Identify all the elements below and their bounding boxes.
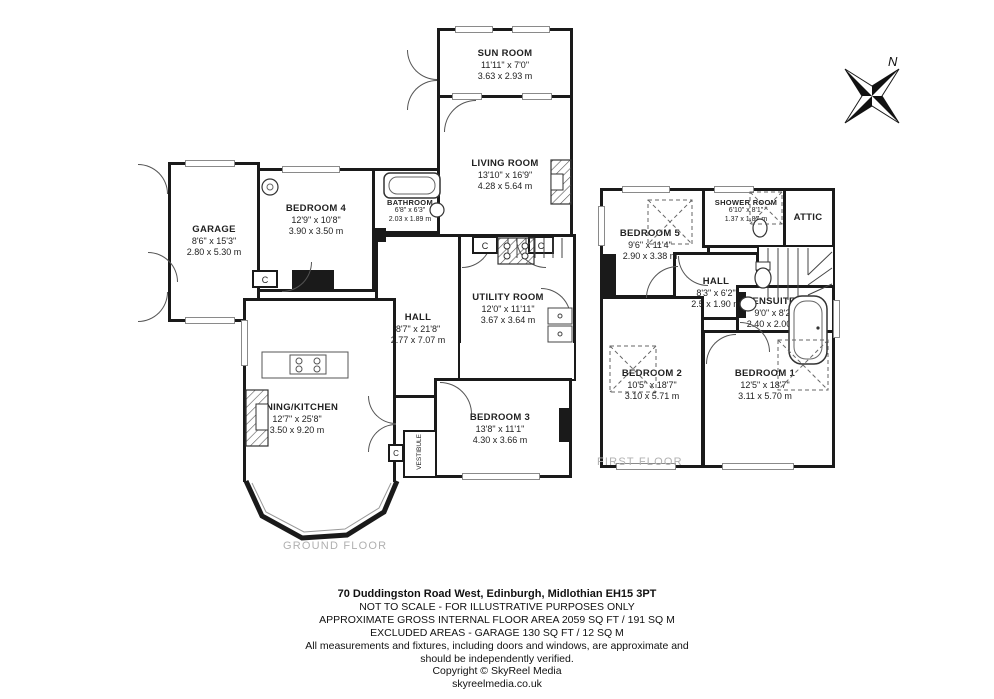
- wall-chunk: [559, 408, 572, 442]
- cupboard-label: C: [252, 270, 278, 288]
- copyright-line: Copyright © SkyReel Media: [0, 665, 994, 678]
- disclaimer-line: NOT TO SCALE - FOR ILLUSTRATIVE PURPOSES…: [0, 601, 994, 614]
- window: [185, 160, 235, 167]
- measurements-line: All measurements and fixtures, including…: [0, 640, 994, 653]
- bay-window: [246, 481, 397, 538]
- room-sunroom: [437, 28, 573, 98]
- cupboard-label: C: [388, 444, 404, 462]
- compass-icon: [845, 69, 899, 123]
- room-showerroom: [702, 188, 786, 248]
- floorplan-canvas: C C C C GARAGE 8'6" x 15'3" 2.80 x 5.30 …: [0, 0, 994, 699]
- door-arc: [407, 80, 437, 110]
- room-bathroom: [372, 168, 446, 234]
- compass-north-label: N: [888, 54, 897, 69]
- verified-line: should be independently verified.: [0, 653, 994, 666]
- window: [622, 186, 670, 193]
- window: [598, 206, 605, 246]
- window: [455, 26, 493, 33]
- window: [452, 93, 482, 100]
- window: [512, 26, 550, 33]
- first-floor-caption: FIRST FLOOR: [597, 456, 683, 468]
- ground-floor-caption: GROUND FLOOR: [283, 540, 387, 552]
- window: [462, 473, 540, 480]
- window: [714, 186, 754, 193]
- floor-area-line: APPROXIMATE GROSS INTERNAL FLOOR AREA 20…: [0, 614, 994, 627]
- wall-chunk: [736, 292, 746, 318]
- excluded-areas-line: EXCLUDED AREAS - GARAGE 130 SQ FT / 12 S…: [0, 627, 994, 640]
- door-arc: [138, 292, 168, 322]
- room-dining-kitchen: [243, 298, 396, 482]
- cupboard-label: C: [472, 236, 498, 254]
- website-line: skyreelmedia.co.uk: [0, 678, 994, 691]
- window: [185, 317, 235, 324]
- room-attic: [783, 188, 835, 248]
- window: [282, 166, 340, 173]
- door-arc: [138, 164, 168, 194]
- wall-chunk: [600, 254, 616, 298]
- label-vestibule: VESTIBULE: [416, 422, 424, 482]
- window: [722, 463, 794, 470]
- door-arc: [407, 50, 437, 80]
- footer-text: 70 Duddingston Road West, Edinburgh, Mid…: [0, 588, 994, 691]
- cupboard-label: C: [528, 236, 554, 254]
- window: [241, 320, 248, 366]
- window: [522, 93, 552, 100]
- wall-chunk: [372, 228, 386, 242]
- room-corridor: [458, 343, 576, 381]
- window: [833, 300, 840, 338]
- room-bedroom2: [600, 296, 704, 468]
- property-address: 70 Duddingston Road West, Edinburgh, Mid…: [0, 588, 994, 601]
- room-name: VESTIBULE: [416, 434, 423, 470]
